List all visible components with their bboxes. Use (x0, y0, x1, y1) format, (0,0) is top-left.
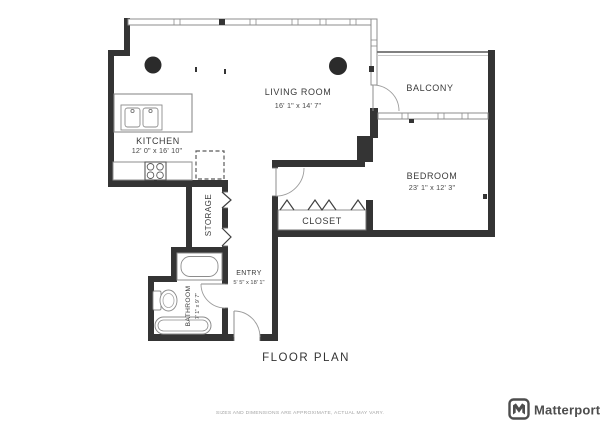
bedroom-door-swing-icon (272, 168, 304, 196)
kitchen-sink-icon (121, 105, 162, 130)
floor-plan-drawing: LIVING ROOM 16' 1" x 14' 7" KITCHEN 12' … (0, 0, 600, 424)
room-entry: ENTRY 5' 5" x 18' 1" (233, 270, 264, 286)
entry-label: ENTRY (236, 270, 262, 277)
disclaimer-text: SIZES AND DIMENSIONS ARE APPROXIMATE, AC… (216, 410, 384, 416)
matterport-wordmark: Matterport (534, 403, 600, 418)
stove-icon (145, 162, 166, 183)
structural-columns (145, 57, 348, 76)
bathtub-icon (177, 253, 222, 280)
room-bedroom: BEDROOM 23' 1" x 12' 3" (407, 171, 458, 192)
living-room-dimensions: 16' 1" x 14' 7" (275, 101, 322, 110)
kitchen-label: KITCHEN (136, 136, 180, 146)
bathroom-dimensions: 7' 1" x 9' 7" (195, 293, 201, 320)
balcony-rail (377, 52, 488, 56)
window-band-living-east (369, 19, 377, 85)
room-balcony: BALCONY (406, 83, 453, 93)
refrigerator-icon (196, 151, 224, 179)
matterport-m-icon (510, 400, 529, 419)
matterport-logo: Matterport (510, 400, 600, 419)
entry-door-swing-icon (234, 311, 260, 341)
room-storage: STORAGE (204, 194, 213, 236)
floor-plan-title: FLOOR PLAN (262, 352, 350, 364)
column (329, 57, 347, 75)
toilet-icon (153, 290, 177, 311)
window-band-bedroom-north (378, 113, 488, 123)
balcony-label: BALCONY (406, 83, 453, 93)
bedroom-label: BEDROOM (407, 171, 458, 181)
room-kitchen: KITCHEN 12' 0" x 16' 10" (132, 136, 183, 155)
bathroom-label: BATHROOM (185, 286, 192, 327)
closet-label: CLOSET (302, 216, 342, 226)
storage-label: STORAGE (204, 194, 213, 236)
living-room-label: LIVING ROOM (265, 87, 332, 97)
bathroom-vanity-icon (155, 317, 211, 334)
entry-dimensions: 5' 5" x 18' 1" (233, 280, 264, 286)
column (145, 57, 162, 74)
room-living-room: LIVING ROOM 16' 1" x 14' 7" (265, 87, 332, 110)
room-closet: CLOSET (302, 216, 342, 226)
bedroom-dimensions: 23' 1" x 12' 3" (409, 183, 456, 192)
floor-plan-page: LIVING ROOM 16' 1" x 14' 7" KITCHEN 12' … (0, 0, 600, 424)
window-band-north (128, 19, 374, 25)
kitchen-dimensions: 12' 0" x 16' 10" (132, 146, 183, 155)
balcony-door-swing-icon (373, 85, 399, 111)
bathroom-door-swing-icon (201, 284, 228, 308)
